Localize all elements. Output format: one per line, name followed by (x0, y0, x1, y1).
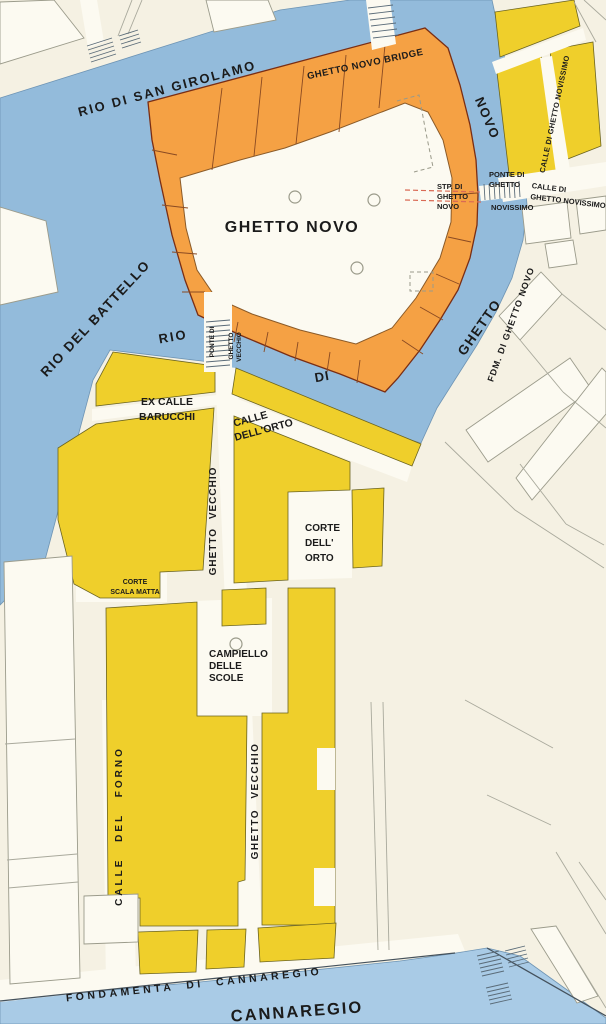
svg-text:NOVO: NOVO (437, 202, 459, 211)
svg-text:GHETTO: GHETTO (489, 180, 520, 189)
well-icon (351, 262, 363, 274)
svg-text:CORTE: CORTE (305, 523, 340, 534)
map-canvas: RIO DI SAN GIROLAMO GHETTO NOVO BRIDGE G… (0, 0, 606, 1024)
ghetto-map: RIO DI SAN GIROLAMO GHETTO NOVO BRIDGE G… (0, 0, 606, 1024)
svg-text:NOVISSIMO: NOVISSIMO (491, 203, 534, 212)
svg-text:PONTE DI: PONTE DI (489, 170, 524, 179)
svg-text:ORTO: ORTO (305, 553, 334, 564)
label-calle-del-forno: CALLE DEL FORNO (114, 746, 125, 906)
svg-text:DELL': DELL' (305, 538, 334, 549)
svg-text:GHETTO: GHETTO (228, 333, 235, 360)
svg-text:EX CALLE: EX CALLE (141, 396, 193, 408)
vecchio-block-small (206, 929, 246, 969)
vecchio-block (352, 488, 384, 568)
vecchio-block-small (138, 930, 198, 974)
svg-text:DELLE: DELLE (209, 661, 242, 672)
svg-text:SCALA MATTA: SCALA MATTA (110, 589, 159, 596)
block-left-column (4, 556, 80, 984)
label-ghetto-vecchio-street-lower: GHETTO VECCHIO (250, 743, 261, 860)
svg-text:SCOLE: SCOLE (209, 673, 244, 684)
block (545, 240, 577, 268)
svg-text:BARUCCHI: BARUCCHI (139, 411, 195, 423)
block (84, 894, 138, 944)
svg-text:PONTE DI: PONTE DI (209, 326, 216, 357)
vecchio-block (58, 408, 214, 598)
corte-dellorto-area (286, 489, 352, 580)
courtyard-notch (314, 868, 335, 906)
label-canal-di: DI (313, 368, 330, 385)
label-ghetto-vecchio-street-upper: GHETTO VECCHIO (208, 467, 219, 576)
label-ghetto-novo: GHETTO NOVO (225, 219, 359, 236)
svg-text:VECCHIO: VECCHIO (236, 332, 243, 362)
svg-text:CORTE: CORTE (123, 579, 148, 586)
vecchio-block-small (258, 923, 336, 962)
courtyard-notch (317, 748, 335, 790)
vecchio-block (222, 588, 266, 626)
svg-text:GHETTO: GHETTO (437, 192, 468, 201)
well-icon (289, 191, 301, 203)
well-icon (368, 194, 380, 206)
svg-text:CAMPIELLO: CAMPIELLO (209, 649, 268, 660)
svg-text:STP. DI: STP. DI (437, 182, 462, 191)
